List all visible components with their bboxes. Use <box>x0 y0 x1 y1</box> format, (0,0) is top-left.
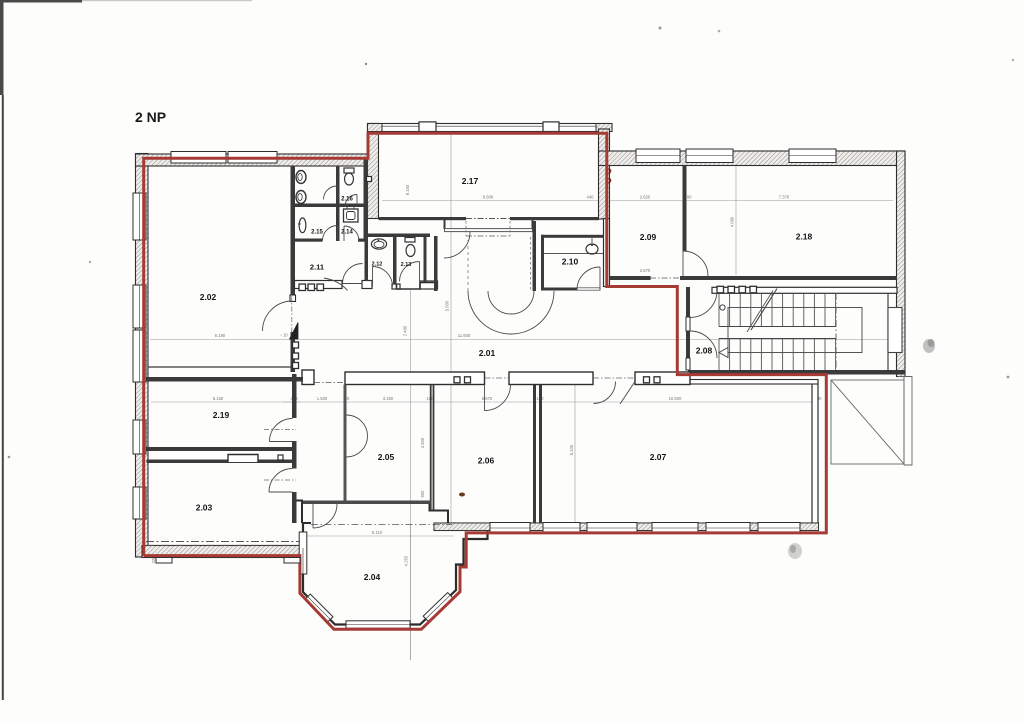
svg-text:5.670: 5.670 <box>482 396 493 401</box>
svg-text:2.01: 2.01 <box>479 348 496 358</box>
svg-text:7.370: 7.370 <box>779 195 790 200</box>
svg-text:5.110: 5.110 <box>372 530 383 535</box>
svg-text:2.12: 2.12 <box>372 262 383 268</box>
svg-text:2.02: 2.02 <box>200 292 217 302</box>
svg-text:4.250: 4.250 <box>404 555 409 566</box>
svg-text:2.03: 2.03 <box>196 503 213 513</box>
svg-text:2 NP: 2 NP <box>135 109 166 125</box>
svg-text:2.670: 2.670 <box>640 268 651 273</box>
svg-text:2.07: 2.07 <box>650 452 667 462</box>
svg-text:2.08: 2.08 <box>696 346 713 356</box>
svg-text:2.05: 2.05 <box>378 452 395 462</box>
svg-text:2.15: 2.15 <box>311 230 323 236</box>
svg-text:2.17: 2.17 <box>462 176 479 186</box>
svg-text:3.150: 3.150 <box>383 396 394 401</box>
svg-text:2.04: 2.04 <box>364 572 381 582</box>
svg-text:4.080: 4.080 <box>730 216 735 227</box>
svg-text:2.11: 2.11 <box>310 263 324 272</box>
svg-text:5.000: 5.000 <box>445 300 450 311</box>
svg-text:9.150: 9.150 <box>405 184 410 195</box>
svg-text:440: 440 <box>587 195 595 200</box>
svg-text:2.09: 2.09 <box>640 232 657 242</box>
svg-text:2.13: 2.13 <box>401 262 412 268</box>
svg-text:2.480: 2.480 <box>403 325 408 336</box>
svg-text:2.10: 2.10 <box>562 257 579 267</box>
svg-text:4.500: 4.500 <box>420 437 425 448</box>
svg-text:10.500: 10.500 <box>669 396 682 401</box>
svg-text:2.19: 2.19 <box>213 410 230 420</box>
svg-text:5.150: 5.150 <box>213 396 224 401</box>
svg-text:1.500: 1.500 <box>317 396 328 401</box>
svg-text:2.620: 2.620 <box>640 195 651 200</box>
svg-text:2.18: 2.18 <box>796 232 813 242</box>
svg-text:8.600: 8.600 <box>483 195 494 200</box>
svg-text:11.600: 11.600 <box>458 333 471 338</box>
svg-text:900: 900 <box>420 490 425 498</box>
svg-text:2.16: 2.16 <box>341 197 353 203</box>
svg-text:2.06: 2.06 <box>478 456 495 466</box>
svg-text:5.190: 5.190 <box>215 333 226 338</box>
svg-text:‹ 10: ‹ 10 <box>280 333 288 338</box>
svg-text:2.14: 2.14 <box>341 230 353 236</box>
svg-text:5.100: 5.100 <box>569 444 574 455</box>
